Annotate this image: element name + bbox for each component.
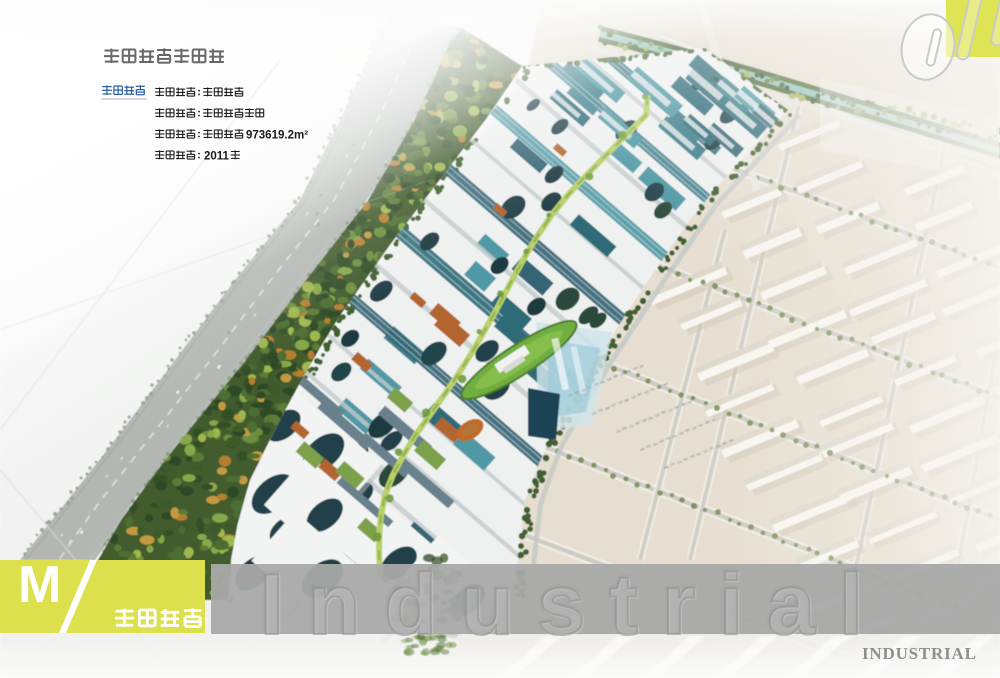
svg-text:973619.2m²: 973619.2m² [246, 129, 308, 141]
svg-text:2011: 2011 [204, 150, 230, 162]
svg-text:M: M [18, 556, 61, 614]
